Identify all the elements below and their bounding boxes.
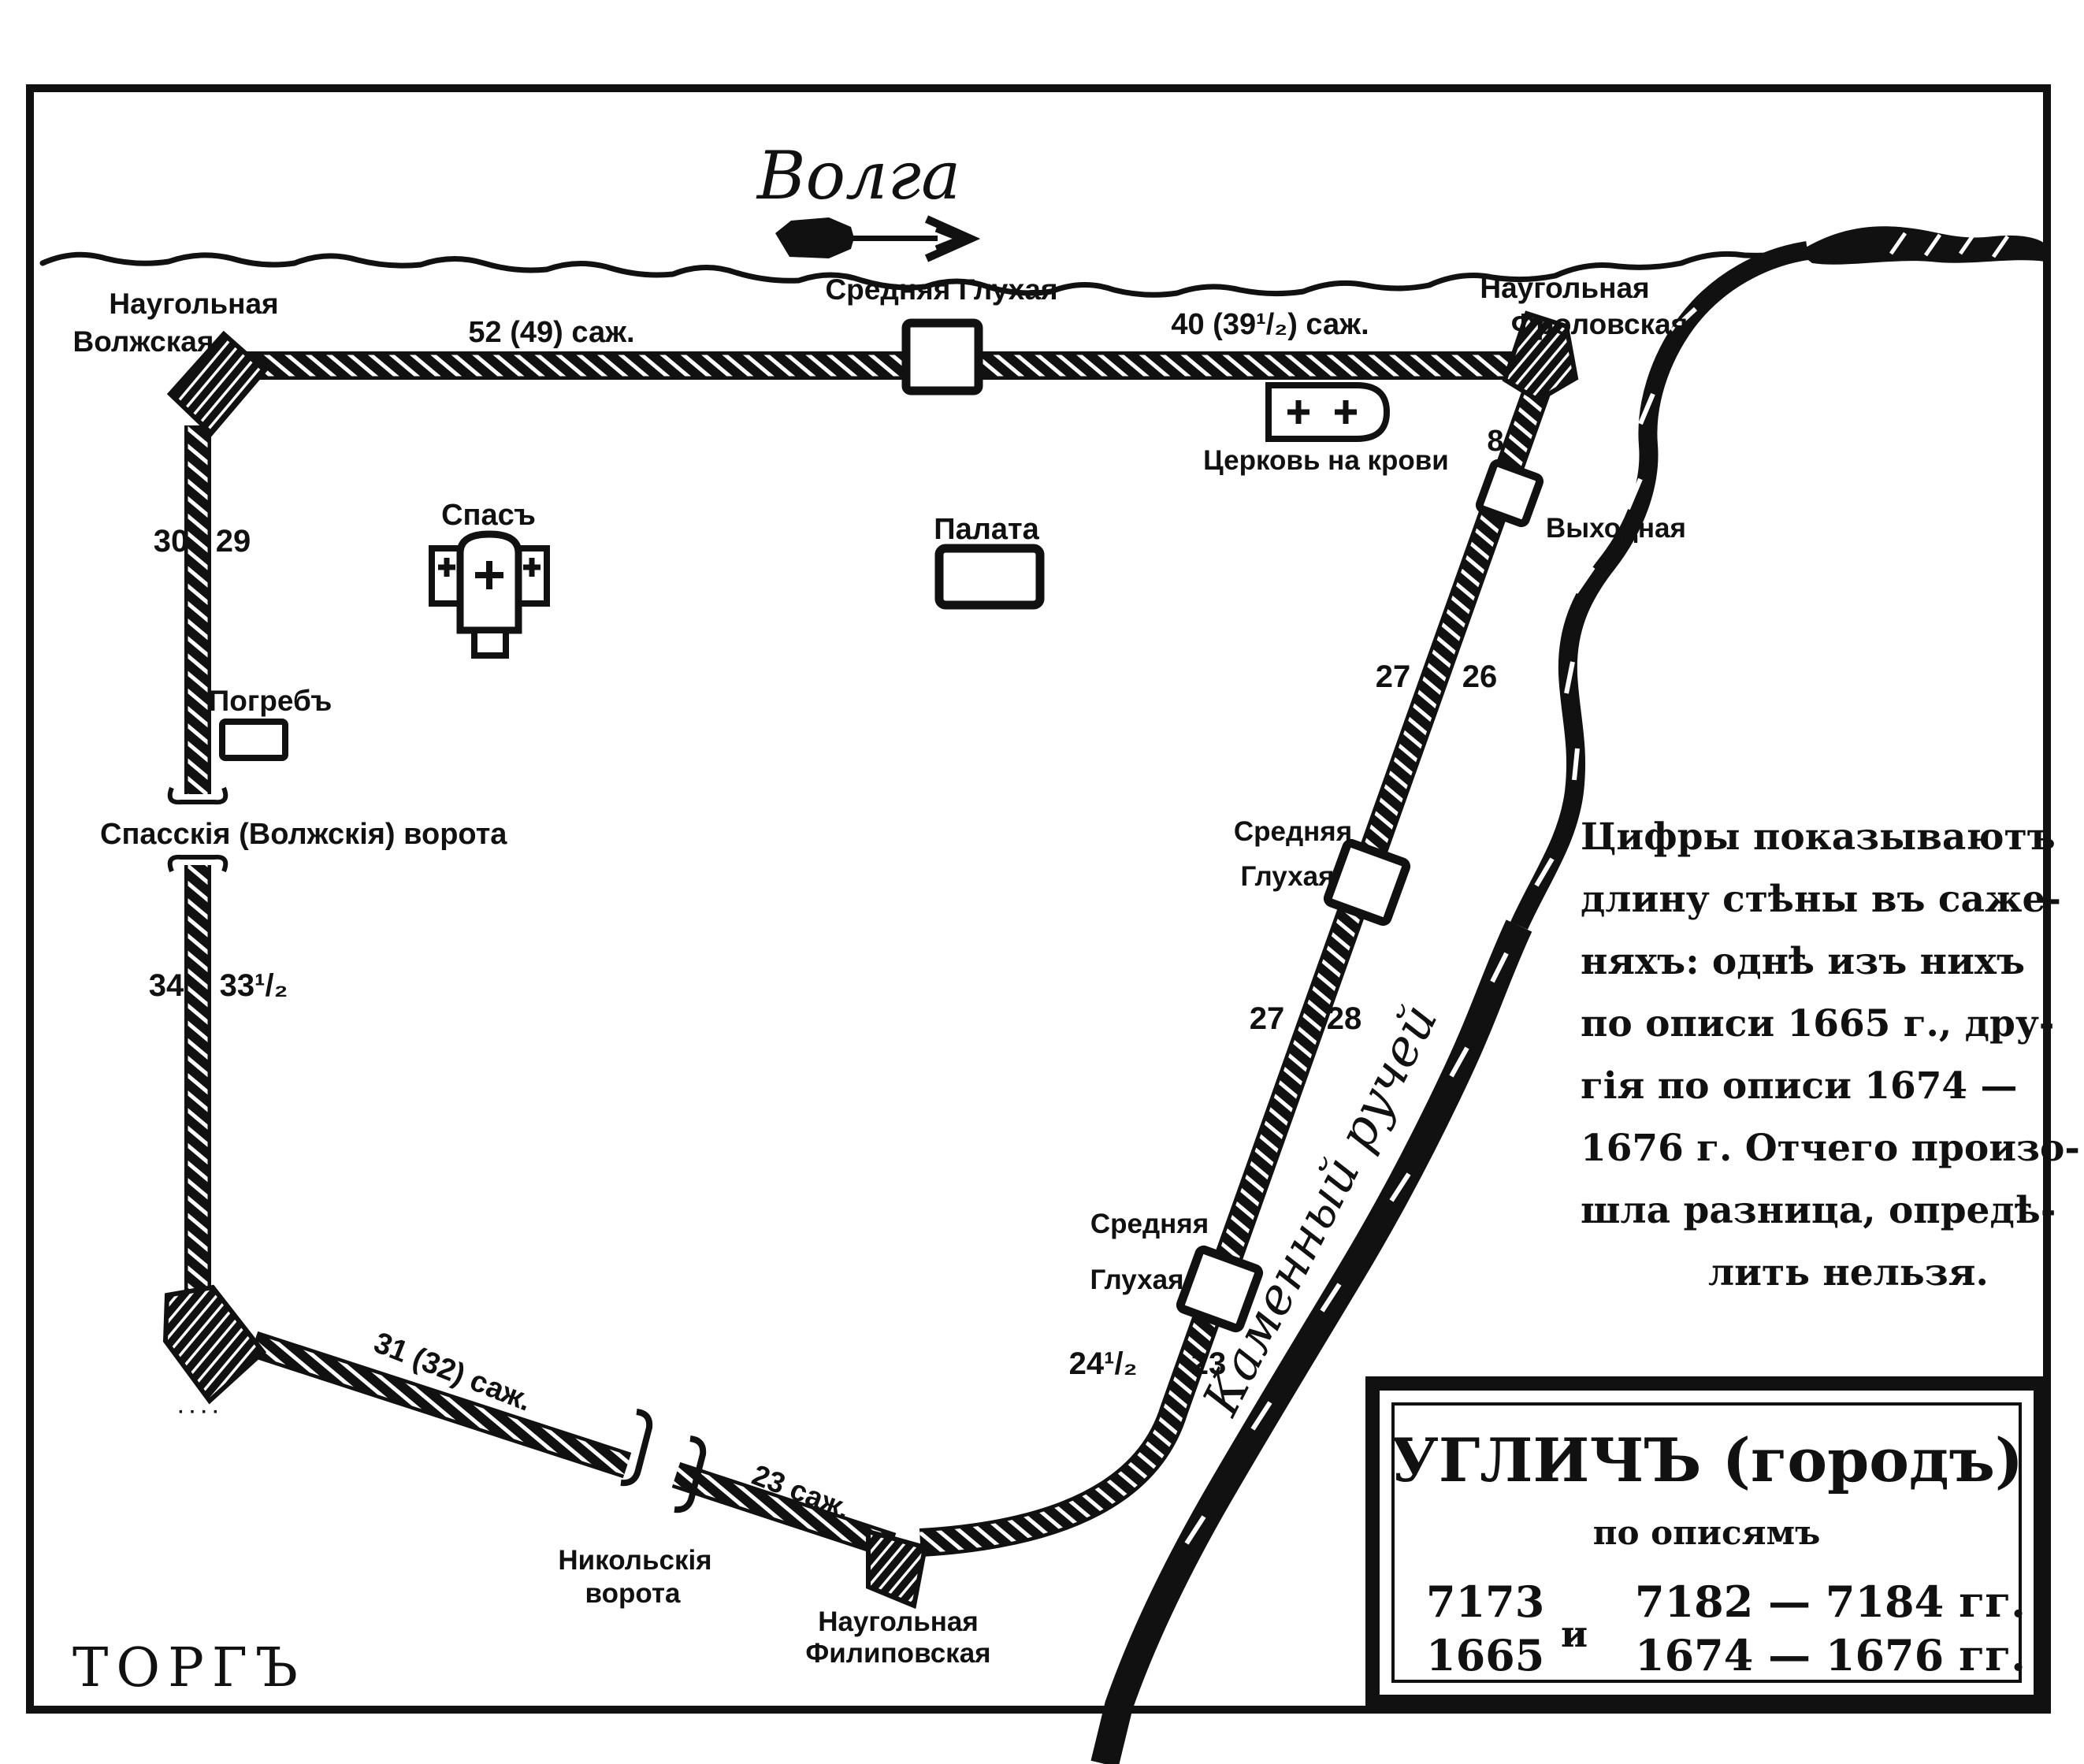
note-line: Цифры показываютъ (1581, 815, 2056, 859)
tower-ne-label-2: Фроловская (1511, 308, 1688, 340)
tower-east-lower-label-1: Средняя (1090, 1209, 1209, 1239)
tower-east-upper-label-1: Средняя (1234, 816, 1352, 847)
wall-top-left-length: 52 (49) саж. (468, 316, 634, 349)
nikolsky-gate-marks (621, 1412, 703, 1510)
note-line: 1676 г. Отчего произо- (1581, 1127, 2080, 1170)
tower-se-label-1: Наугольная (818, 1606, 979, 1637)
nikolsky-gate-label-2: ворота (585, 1578, 681, 1609)
flow-direction-arrow (775, 217, 971, 258)
spassky-gate-label: Спасскія (Волжскія) ворота (100, 818, 507, 851)
vykhodnaya-label: Выходная (1546, 513, 1686, 544)
num-east-upper-inner: 26 (1462, 659, 1498, 694)
num-east-upper-outer: 27 (1376, 659, 1411, 694)
num-west-lower-inner: 33¹/₂ (220, 968, 288, 1003)
note-line: гія по описи 1674 — (1581, 1064, 2017, 1108)
cartouche-year-left-2: 1665 (1426, 1630, 1544, 1680)
cartouche-subtitle: по описямъ (1593, 1513, 1821, 1552)
cartouche-year-right-1: 7182 — 7184 гг. (1635, 1576, 2026, 1627)
torg-label: ТОРГЪ (72, 1637, 306, 1699)
num-east-lower-outer: 24¹/₂ (1069, 1346, 1138, 1381)
note-paragraph: Цифры показываютъ длину стѣны въ саже- н… (1581, 815, 2080, 1294)
num-west-upper-inner: 29 (216, 524, 251, 559)
cartouche-year-right-2: 1674 — 1676 гг. (1635, 1630, 2026, 1680)
tower-se-corner (868, 1532, 925, 1606)
tower-ne-label-1: Наугольная (1480, 272, 1649, 304)
pogreb-label: Погребъ (209, 685, 332, 717)
num-west-upper-outer: 30 (154, 524, 189, 559)
palata-building (939, 548, 1040, 605)
tower-top-middle-label: Средняя Глухая (825, 273, 1057, 306)
spas-label: Спасъ (441, 499, 536, 532)
cartouche-year-left-1: 7173 (1426, 1576, 1544, 1627)
tower-sw-corner (165, 1287, 263, 1401)
note-line: по описи 1665 г., дру- (1581, 1002, 2054, 1045)
tower-nw-label-1: Наугольная (109, 288, 278, 320)
num-east-top: 8 (1487, 425, 1503, 458)
church-on-blood-label: Церковь на крови (1203, 445, 1449, 476)
nikolsky-gate-label-1: Никольскія (558, 1545, 711, 1576)
tower-east-upper-label-2: Глухая (1240, 861, 1334, 892)
far-bank (1798, 226, 2045, 264)
tower-se-label-2: Филиповская (805, 1638, 990, 1669)
church-on-blood-building (1269, 385, 1387, 439)
pogreb-building (222, 722, 285, 758)
river-title: Волга (756, 137, 960, 214)
wall-top-right-length: 40 (39¹/₂) саж. (1171, 308, 1369, 341)
uglich-town-plan-scan: Волга Каменный ручей (0, 0, 2084, 1764)
tower-nw-label-2: Волжская (73, 325, 214, 358)
map-canvas: Волга Каменный ручей (0, 0, 2084, 1764)
tower-sw-small-label: · · · · (178, 1402, 219, 1423)
cartouche-title: УГЛИЧЪ (городъ) (1390, 1425, 2023, 1495)
num-east-lower-inner: 23 (1191, 1346, 1227, 1381)
num-east-middle-inner: 28 (1327, 1001, 1362, 1036)
cartouche-conjunction: и (1561, 1613, 1588, 1655)
palata-label: Палата (934, 513, 1039, 546)
note-line: няхъ: однѣ изъ нихъ (1581, 940, 2025, 983)
tower-north-middle (906, 323, 979, 391)
tower-east-lower-label-2: Глухая (1090, 1265, 1183, 1295)
note-line: лить нельзя. (1708, 1251, 1989, 1294)
num-west-lower-outer: 34 (149, 968, 184, 1003)
num-east-middle-outer: 27 (1250, 1001, 1285, 1036)
note-line: шла разница, опредѣ- (1581, 1189, 2056, 1232)
title-cartouche: УГЛИЧЪ (городъ) по описямъ 7173 1665 и 7… (1373, 1383, 2041, 1702)
tower-vykhodnaya (1478, 462, 1540, 524)
spas-church (432, 534, 547, 655)
note-line: длину стѣны въ саже- (1581, 878, 2061, 921)
